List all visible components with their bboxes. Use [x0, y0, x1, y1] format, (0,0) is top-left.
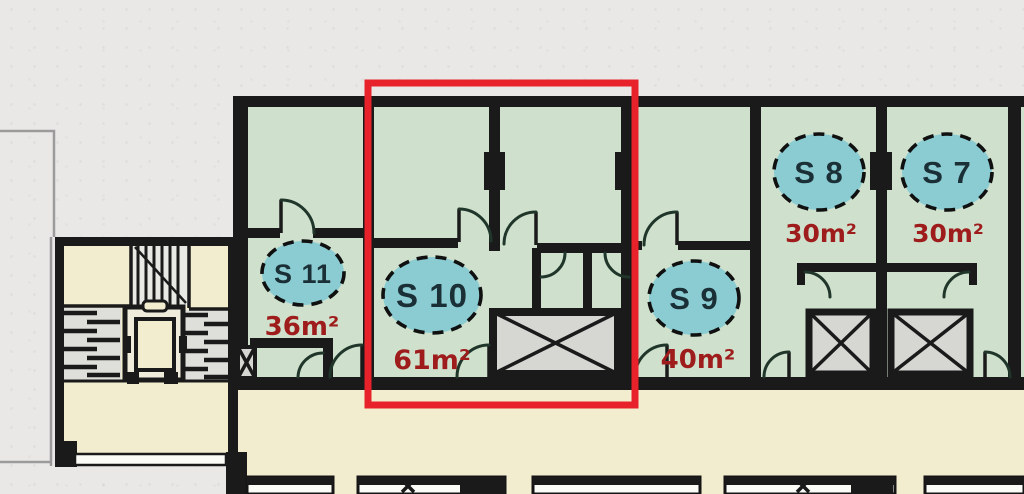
unit-label-s7: S 7 — [922, 155, 972, 190]
elevator-door — [143, 301, 167, 311]
unit-label-s9: S 9 — [669, 281, 719, 316]
block-right-wall — [1008, 107, 1021, 377]
unit-badge-s8[interactable]: S 8 — [774, 134, 864, 210]
unit-label-s11: S 11 — [274, 259, 332, 289]
unit-area-s10: 61m² — [393, 345, 471, 376]
divider-s8-s7 — [876, 107, 887, 378]
block-bottom-wall — [233, 377, 1024, 390]
s10-room-divider — [489, 107, 500, 241]
unit-area-s11: 36m² — [265, 312, 340, 342]
unit-badge-s11[interactable]: S 11 — [262, 241, 344, 305]
unit-badge-s9[interactable]: S 9 — [649, 261, 739, 335]
floor-plan-drawing: S 11 36m² S 10 61m² S 9 40m² S 8 30m² S … — [0, 0, 1024, 494]
unit-badge-s10[interactable]: S 10 — [383, 257, 481, 333]
floor-plan-page: S 11 36m² S 10 61m² S 9 40m² S 8 30m² S … — [0, 0, 1024, 494]
block-top-wall — [233, 96, 1024, 107]
unit-area-s7: 30m² — [912, 219, 984, 248]
unit-area-s9: 40m² — [661, 345, 736, 375]
stair-left-wall — [55, 237, 64, 449]
elevator — [123, 301, 187, 384]
unit-label-s8: S 8 — [794, 155, 844, 190]
unit-badge-s7[interactable]: S 7 — [902, 134, 992, 210]
terrace-outline — [0, 131, 54, 466]
unit-area-s8: 30m² — [785, 219, 857, 248]
divider-s10-s9 — [621, 107, 633, 377]
unit-label-s10: S 10 — [396, 277, 468, 314]
elevator-cab — [136, 319, 174, 370]
divider-s9-s8 — [750, 107, 761, 377]
stair-top-wall — [55, 237, 237, 246]
corridor-window-band — [75, 454, 226, 465]
